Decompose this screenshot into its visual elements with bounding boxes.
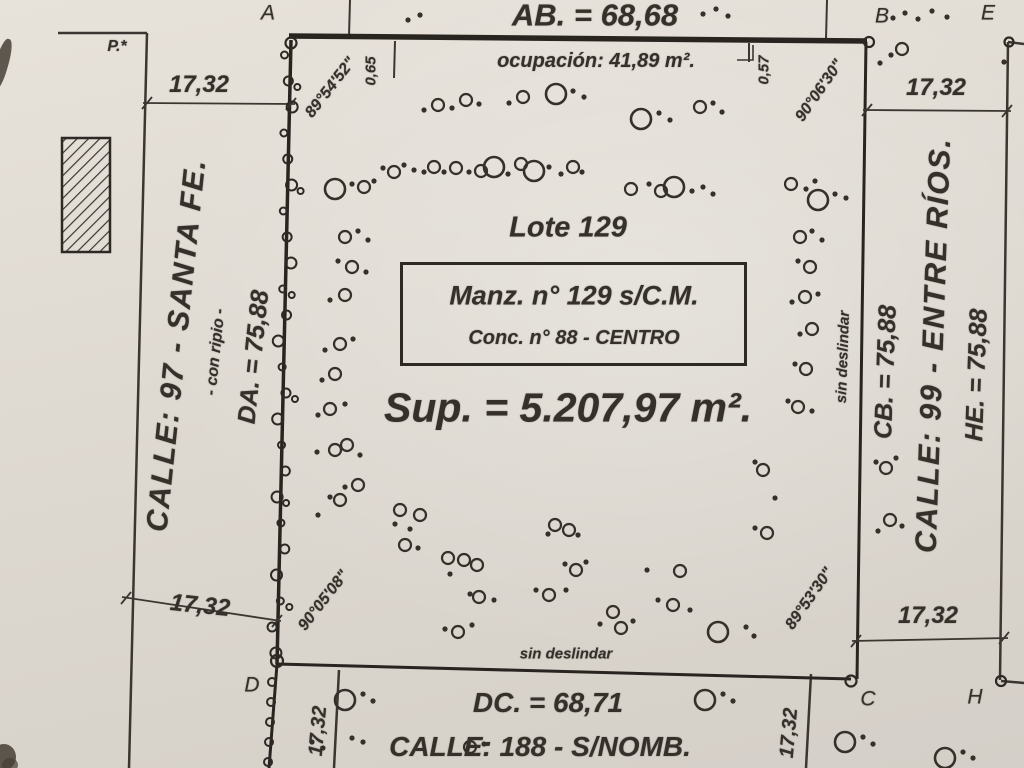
scan-smudge — [2, 758, 18, 768]
survey-plan-scan: AB. = 68,68 ocupación: 41,89 m². P.* 17,… — [0, 0, 1024, 768]
ocupacion-label: ocupación: 41,89 m². — [497, 51, 695, 71]
dim-17-32-bottom-right: 17,32 — [898, 604, 958, 628]
dim-17-32-top-right: 17,32 — [906, 76, 966, 100]
dim-ab-label: AB. = 68,68 — [512, 0, 678, 31]
sin-deslindar-right-label: sin deslindar — [834, 311, 852, 404]
corner-h-label: H — [967, 687, 982, 708]
corner-a-label: A — [261, 3, 275, 24]
calle-188-label: CALLE: 188 - S/NOMB. — [389, 733, 691, 761]
corner-e-label: E — [981, 3, 995, 24]
p-label: P.* — [107, 39, 126, 55]
dim-17-32-cross-left: 17,32 — [306, 705, 330, 757]
offset-0-57-label: 0,57 — [757, 55, 772, 84]
dim-he-label: HE. = 75,88 — [962, 308, 992, 442]
dim-17-32-bottom-left: 17,32 — [169, 591, 231, 621]
hatched-building — [62, 138, 110, 252]
dim-cb-label: CB. = 75,88 — [871, 305, 901, 440]
lot-name: Lote 129 — [509, 214, 627, 243]
corner-b-label: B — [875, 6, 889, 27]
corner-d-label: D — [244, 675, 259, 696]
superficie-label: Sup. = 5.207,97 m². — [384, 388, 752, 429]
dim-17-32-top-left: 17,32 — [169, 73, 229, 97]
manzana-box — [400, 262, 747, 366]
dim-dc-label: DC. = 68,71 — [473, 689, 623, 717]
dim-17-32-cross-right: 17,32 — [777, 707, 801, 759]
concesion-label: Conc. n° 88 - CENTRO — [468, 328, 679, 348]
sin-deslindar-bottom-label: sin deslindar — [520, 647, 613, 662]
corner-c-label: C — [860, 689, 875, 710]
manzana-label: Manz. n° 129 s/C.M. — [449, 283, 698, 310]
offset-0-65-label: 0,65 — [364, 56, 379, 85]
